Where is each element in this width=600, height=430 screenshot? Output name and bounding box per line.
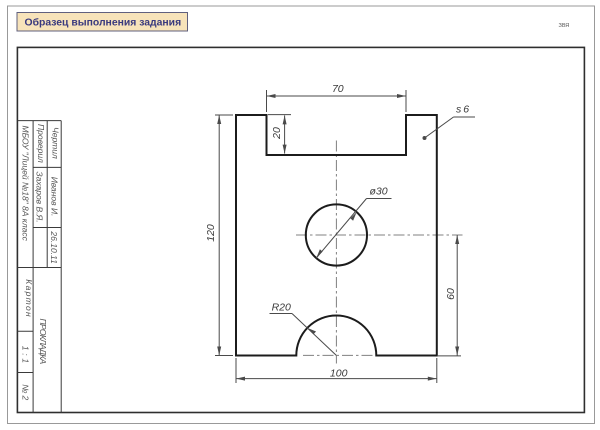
svg-text:Картон: Картон [24,279,34,318]
svg-text:Захаров В.Я.: Захаров В.Я. [35,171,45,222]
svg-text:26.10.11: 26.10.11 [49,230,59,264]
svg-text:s6: s6 [456,104,471,116]
svg-text:Иванов И.: Иванов И. [50,177,60,217]
svg-text:70: 70 [332,83,344,95]
svg-text:60: 60 [445,288,457,300]
svg-text:120: 120 [205,224,217,242]
svg-text:Чертил: Чертил [50,127,60,159]
svg-text:ПРОКЛАДКА: ПРОКЛАДКА [38,319,48,365]
svg-text:20: 20 [271,127,283,140]
svg-text:Проверил: Проверил [36,124,46,163]
svg-text:ЗВЯ: ЗВЯ [559,23,570,29]
svg-text:1:1: 1:1 [21,346,31,366]
svg-text:R20: R20 [272,302,291,314]
svg-text:100: 100 [330,367,348,379]
svg-text:Образец выполнения задания: Образец выполнения задания [25,16,182,28]
svg-text:№2: №2 [21,384,31,402]
svg-text:ø30: ø30 [369,186,387,198]
svg-text:МБОУ "Лицей №18" 8А класс: МБОУ "Лицей №18" 8А класс [21,126,31,242]
